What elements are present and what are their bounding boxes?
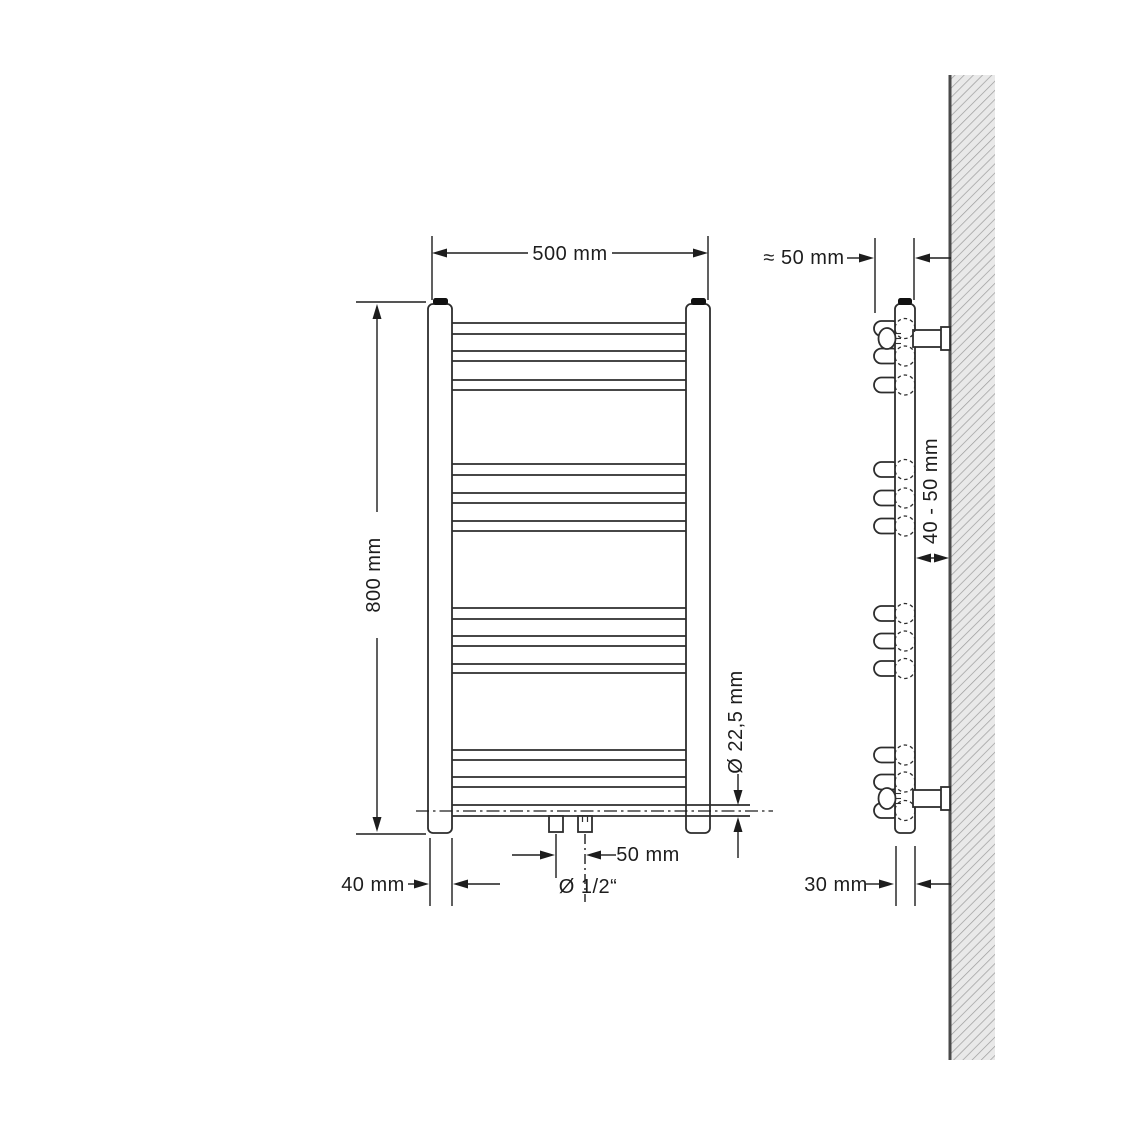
dim-mount-distance <box>916 554 949 563</box>
radiator-side-view <box>874 298 950 833</box>
connection-thread-label: Ø 1/2“ <box>559 877 618 897</box>
front-left-column <box>428 304 452 833</box>
tube-diameter-label: Ø 22,5 mm <box>726 670 746 773</box>
side-column <box>895 304 915 833</box>
technical-drawing <box>0 0 1140 1140</box>
front-right-column <box>686 304 710 833</box>
wall-bracket-bottom <box>879 787 951 810</box>
front-width-label: 500 mm <box>532 244 607 264</box>
dim-column-width <box>408 838 500 906</box>
depth-label: 30 mm <box>804 875 868 895</box>
mount-distance-label: 40 - 50 mm <box>921 438 941 544</box>
column-width-label: 40 mm <box>341 875 405 895</box>
dim-depth <box>866 846 951 906</box>
front-connection-stubs <box>549 816 592 832</box>
wall-section <box>950 75 995 1060</box>
connection-spacing-label: 50 mm <box>616 845 680 865</box>
radiator-dimension-diagram: 500 mm 800 mm 40 mm 50 mm Ø 1/2“ Ø 22,5 … <box>0 0 1140 1140</box>
radiator-front-view <box>428 298 750 833</box>
wall-clearance-label: ≈ 50 mm <box>763 248 844 268</box>
side-column-cap <box>898 298 912 305</box>
front-right-cap <box>691 298 706 305</box>
front-left-cap <box>433 298 448 305</box>
front-height-label: 800 mm <box>364 537 384 612</box>
